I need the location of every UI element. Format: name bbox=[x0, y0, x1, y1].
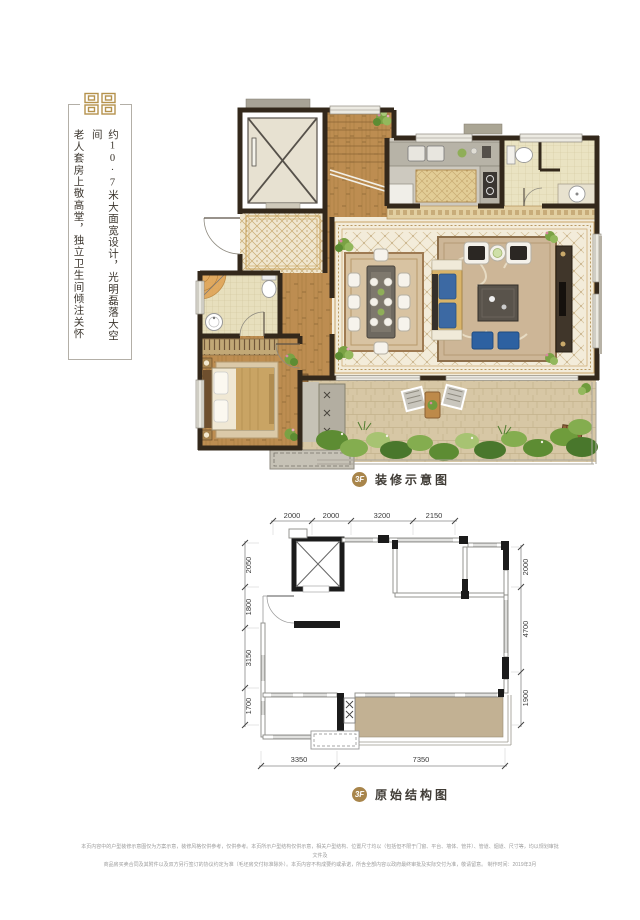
tagline-text: 约10·7米大面宽设计，光明磊落大空间 老人套房上敬高堂，独立卫生间倾注关怀 bbox=[78, 129, 122, 351]
decorated-plan-label: 3F 装修示意图 bbox=[352, 471, 450, 488]
svg-text:2000: 2000 bbox=[323, 511, 340, 520]
tagline-line-2: 老人套房上敬高堂，独立卫生间倾注关怀 bbox=[69, 129, 85, 351]
svg-text:1800: 1800 bbox=[244, 599, 253, 616]
elevator-shaft bbox=[289, 529, 342, 592]
svg-text:2050: 2050 bbox=[244, 557, 253, 574]
floor-badge: 3F bbox=[352, 472, 367, 487]
entry-door bbox=[263, 596, 294, 623]
vent-shaft bbox=[344, 698, 355, 723]
structural-plan-label: 3F 原始结构图 bbox=[352, 786, 450, 803]
structural-floor-plan: 2000 2000 3200 2150 2050 1800 3150 1700 … bbox=[215, 505, 537, 777]
svg-text:2000: 2000 bbox=[284, 511, 301, 520]
wardrobe bbox=[202, 339, 278, 355]
svg-text:7350: 7350 bbox=[413, 755, 430, 764]
structural-plan-title: 原始结构图 bbox=[375, 786, 450, 803]
toilet bbox=[516, 148, 533, 163]
svg-text:1900: 1900 bbox=[521, 690, 530, 707]
svg-text:1700: 1700 bbox=[244, 698, 253, 715]
ensuite-sink bbox=[206, 314, 223, 331]
disclaimer: 本页内容中的户型装修示意图仅为方案示意，装修风格仅供参考，仅供参考。本页所示户型… bbox=[80, 843, 560, 870]
floor-badge: 3F bbox=[352, 787, 367, 802]
terrace-area bbox=[355, 697, 503, 737]
tv bbox=[559, 282, 566, 316]
disclaimer-line-2: 商品房买卖合同及其附件以及双方另行签订的协议约定为准（毛坯房交付标准除外）。本页… bbox=[80, 861, 560, 870]
double-spiral-ornament-icon bbox=[80, 92, 120, 116]
disclaimer-line-1: 本页内容中的户型装修示意图仅为方案示意，装修风格仅供参考，仅供参考。本页所示户型… bbox=[80, 843, 560, 861]
svg-text:3200: 3200 bbox=[374, 511, 391, 520]
tagline-box: 约10·7米大面宽设计，光明磊落大空间 老人套房上敬高堂，独立卫生间倾注关怀 bbox=[68, 104, 132, 360]
fridge bbox=[389, 184, 413, 206]
svg-text:3150: 3150 bbox=[244, 650, 253, 667]
svg-text:4700: 4700 bbox=[521, 621, 530, 638]
coffee-table bbox=[478, 285, 518, 321]
svg-text:2000: 2000 bbox=[521, 559, 530, 576]
living-room bbox=[432, 237, 572, 361]
ensuite-toilet bbox=[262, 281, 276, 298]
decorated-floor-plan bbox=[182, 96, 602, 474]
kitchen-sink bbox=[408, 146, 425, 161]
foyer bbox=[240, 211, 325, 273]
svg-text:3350: 3350 bbox=[291, 755, 308, 764]
decorated-plan-title: 装修示意图 bbox=[375, 471, 450, 488]
bed-headboard bbox=[203, 370, 212, 428]
dining-room bbox=[345, 249, 423, 354]
svg-text:2150: 2150 bbox=[426, 511, 443, 520]
tagline-line-1: 约10·7米大面宽设计，光明磊落大空间 bbox=[87, 129, 120, 351]
elevator bbox=[246, 99, 317, 210]
